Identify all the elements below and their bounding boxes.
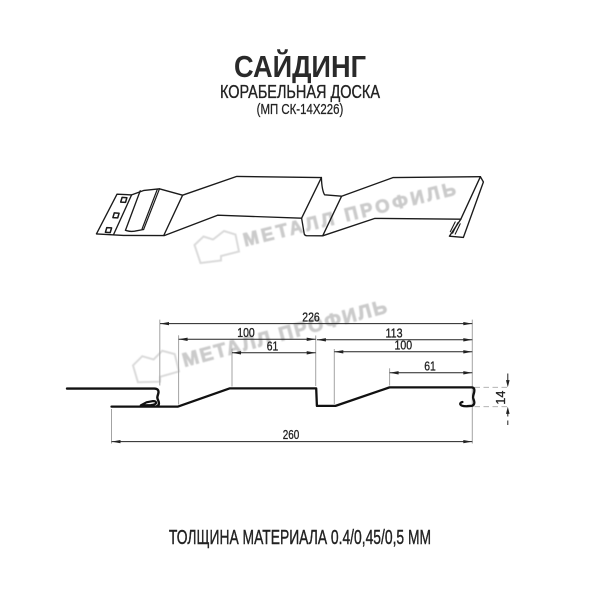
svg-text:61: 61 — [424, 360, 436, 374]
svg-text:260: 260 — [283, 428, 300, 442]
svg-text:МЕТАЛЛ ПРОФИЛЬ: МЕТАЛЛ ПРОФИЛЬ — [241, 177, 461, 250]
svg-text:14: 14 — [494, 391, 508, 405]
svg-text:100: 100 — [237, 326, 255, 340]
svg-text:МЕТАЛЛ ПРОФИЛЬ: МЕТАЛЛ ПРОФИЛЬ — [180, 296, 391, 372]
svg-text:100: 100 — [395, 339, 413, 353]
svg-text:61: 61 — [267, 340, 279, 354]
svg-text:226: 226 — [302, 311, 320, 325]
